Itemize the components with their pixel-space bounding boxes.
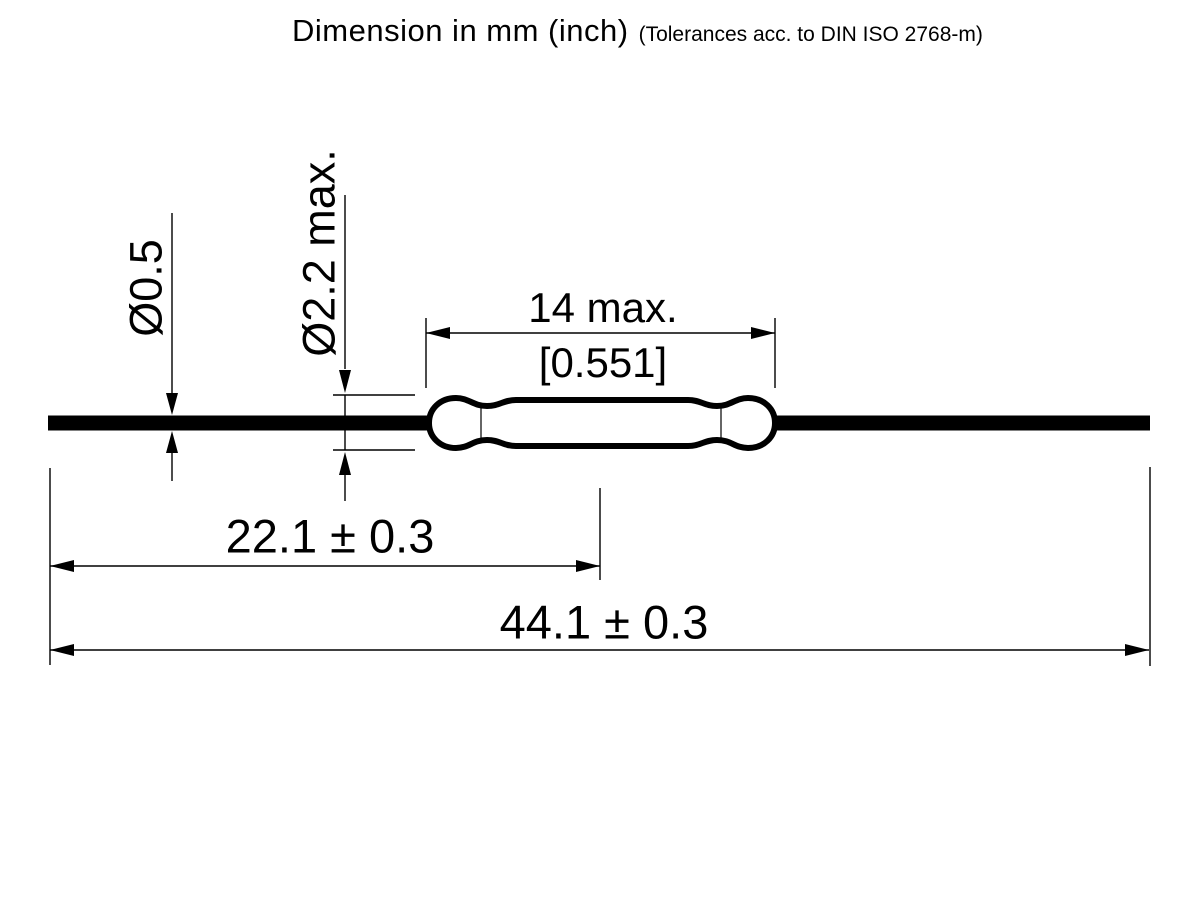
dim-glass-length-arrow-left bbox=[426, 327, 450, 339]
label-lead-to-center: 22.1 ± 0.3 bbox=[226, 513, 435, 560]
dim-total-length-arrow-left bbox=[50, 644, 74, 656]
label-lead-diameter: Ø0.5 bbox=[124, 239, 169, 337]
label-total-length: 44.1 ± 0.3 bbox=[500, 599, 709, 646]
reed-switch-drawing bbox=[0, 0, 1200, 900]
technical-drawing-page: Dimension in mm (inch) (Tolerances acc. … bbox=[0, 0, 1200, 900]
label-glass-length-mm: 14 max. bbox=[528, 287, 677, 329]
dim-glass-diameter-arrow-bottom bbox=[339, 452, 351, 475]
dim-glass-diameter bbox=[333, 195, 415, 501]
dim-lead-diameter-arrow-bottom bbox=[166, 431, 178, 453]
dim-glass-diameter-arrow-top bbox=[339, 370, 351, 393]
component-glass-body bbox=[429, 398, 775, 448]
label-glass-diameter: Ø2.2 max. bbox=[297, 149, 342, 357]
dim-lead-to-center-arrow-right bbox=[576, 560, 600, 572]
label-glass-length-inch: [0.551] bbox=[539, 342, 667, 384]
dim-lead-diameter-arrow-top bbox=[166, 393, 178, 415]
dim-total-length-arrow-right bbox=[1125, 644, 1149, 656]
dim-glass-length-arrow-right bbox=[751, 327, 775, 339]
dim-lead-to-center-arrow-left bbox=[50, 560, 74, 572]
